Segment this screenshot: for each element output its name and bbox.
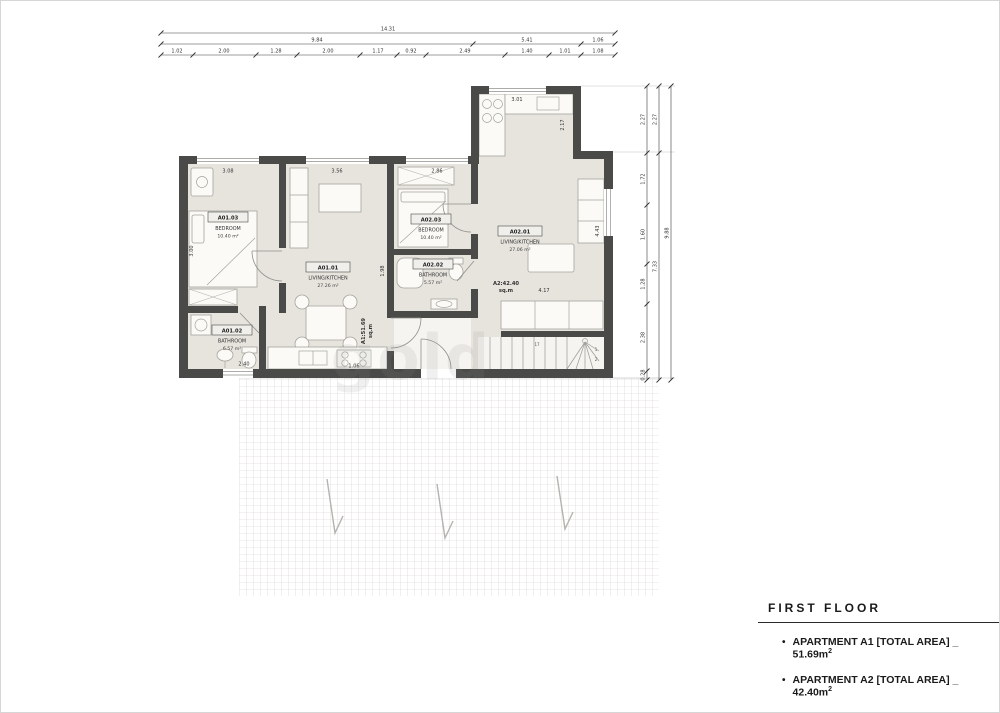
apartment-a2-area: A2:42.40 xyxy=(493,281,519,287)
dim-right-mid-1: 2.27 xyxy=(653,114,659,125)
terrace-hatch xyxy=(239,378,659,596)
dim-row2-1: 9.84 xyxy=(311,38,322,44)
legend-title: FIRST FLOOR xyxy=(758,601,1000,623)
dim-bedroom1-window: 3.08 xyxy=(222,169,233,175)
dim-right-outer: 9.88 xyxy=(665,227,671,238)
dim-row3-10: 1.08 xyxy=(592,49,603,55)
dim-row2-3: 1.06 xyxy=(592,38,603,44)
room-area: 10.40 m² xyxy=(217,234,238,240)
dim-living-window: 3.56 xyxy=(331,169,342,175)
room-area: 10.40 m² xyxy=(420,235,441,241)
dim-living-side: 1.98 xyxy=(380,265,386,276)
room-code: A01.02 xyxy=(222,329,243,335)
dim-right-inner-6: 0.28 xyxy=(641,369,647,380)
dim-bedroom2-window: 2.86 xyxy=(431,169,442,175)
room-area: 27.06 m² xyxy=(509,247,530,253)
floor-plan-page: 17 1 2 xyxy=(0,0,1000,713)
room-name: LIVING/KITCHEN xyxy=(308,276,348,282)
top-dimension-chain: 14.31 9.84 5.41 1.06 1.02 2.00 1.28 2.00… xyxy=(159,27,618,58)
room-name: LIVING/KITCHEN xyxy=(500,240,540,246)
stair-step-count: 17 xyxy=(534,342,540,347)
furniture-bedroom-a2 xyxy=(398,167,454,247)
room-name: BEDROOM xyxy=(215,226,241,232)
dim-right-mid-2: 7.33 xyxy=(653,261,659,272)
dim-right-inner-5: 2.38 xyxy=(641,332,647,343)
room-name: BEDROOM xyxy=(418,228,444,234)
bullet-icon: • xyxy=(782,637,786,648)
dim-right-inner-1: 2.27 xyxy=(641,114,647,125)
dim-kitchen-top: 3.01 xyxy=(511,97,522,103)
legend-item-text: APARTMENT A1 [TOTAL AREA] _ 51.69m2 xyxy=(793,636,1000,661)
room-area: 27.26 m² xyxy=(317,283,338,289)
dim-right-inner-4: 1.28 xyxy=(641,278,647,289)
room-name: BATHROOM xyxy=(218,339,246,345)
dim-row3-4: 2.00 xyxy=(322,49,333,55)
dim-row3-2: 2.00 xyxy=(218,49,229,55)
dim-row3-3: 1.28 xyxy=(270,49,281,55)
dim-bath-width: 2.40 xyxy=(238,362,249,368)
dim-kitchen-side: 2.17 xyxy=(560,119,566,130)
dim-hall-width: 4.17 xyxy=(538,288,549,294)
dim-row3-5: 1.17 xyxy=(372,49,383,55)
dim-wardrobe-side: 3.00 xyxy=(189,245,195,256)
legend-item-text: APARTMENT A2 [TOTAL AREA] _ 42.40m2 xyxy=(793,674,1000,699)
dim-row3-6: 0.92 xyxy=(405,49,416,55)
room-name: BATHROOM xyxy=(419,273,447,279)
stair-step-2: 2 xyxy=(595,357,598,362)
dim-right-inner-3: 1.60 xyxy=(641,229,647,240)
room-code: A02.03 xyxy=(421,218,442,224)
room-code: A02.01 xyxy=(510,230,531,236)
legend-sup: 2 xyxy=(828,686,832,693)
room-code: A02.02 xyxy=(423,263,444,269)
dim-row3-7: 2.49 xyxy=(459,49,470,55)
stair-step-1: 1 xyxy=(595,347,598,352)
legend-item-apartment-a2: • APARTMENT A2 [TOTAL AREA] _ 42.40m2 xyxy=(782,674,1000,699)
apartment-a2-unit: sq.m xyxy=(499,288,513,294)
room-area: 5.57 m² xyxy=(424,280,442,286)
dim-row2-2: 5.41 xyxy=(521,38,532,44)
dim-total-width: 14.31 xyxy=(381,27,395,33)
dim-row3-9: 1.01 xyxy=(559,49,570,55)
room-code: A01.01 xyxy=(318,266,339,272)
dim-living2-side: 4.43 xyxy=(595,225,601,236)
room-code: A01.03 xyxy=(218,216,239,222)
dim-row3-1: 1.02 xyxy=(171,49,182,55)
bullet-icon: • xyxy=(782,675,786,686)
room-area: 6.57 m² xyxy=(223,346,241,352)
watermark: gold xyxy=(331,321,492,394)
legend-item-apartment-a1: • APARTMENT A1 [TOTAL AREA] _ 51.69m2 xyxy=(782,636,1000,661)
dim-row3-8: 1.40 xyxy=(521,49,532,55)
legend-sup: 2 xyxy=(828,648,832,655)
legend: FIRST FLOOR • APARTMENT A1 [TOTAL AREA] … xyxy=(758,601,1000,698)
dim-right-inner-2: 1.72 xyxy=(641,173,647,184)
